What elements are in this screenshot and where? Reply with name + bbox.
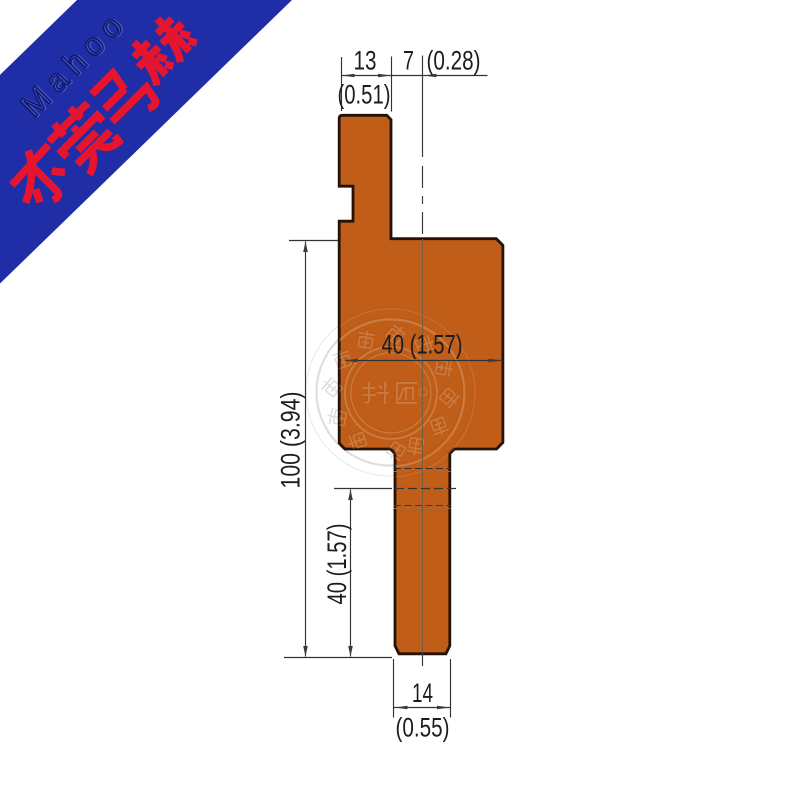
- svg-text:(0.51): (0.51): [338, 80, 391, 110]
- svg-text:7: 7: [403, 46, 414, 76]
- svg-text:14: 14: [412, 678, 433, 708]
- svg-text:40 (1.57): 40 (1.57): [322, 524, 352, 605]
- svg-text:(0.55): (0.55): [396, 713, 450, 743]
- svg-text:40 (1.57): 40 (1.57): [382, 330, 463, 360]
- svg-text:13: 13: [354, 46, 377, 76]
- svg-text:100 (3.94): 100 (3.94): [276, 392, 306, 489]
- svg-text:(0.28): (0.28): [427, 46, 481, 76]
